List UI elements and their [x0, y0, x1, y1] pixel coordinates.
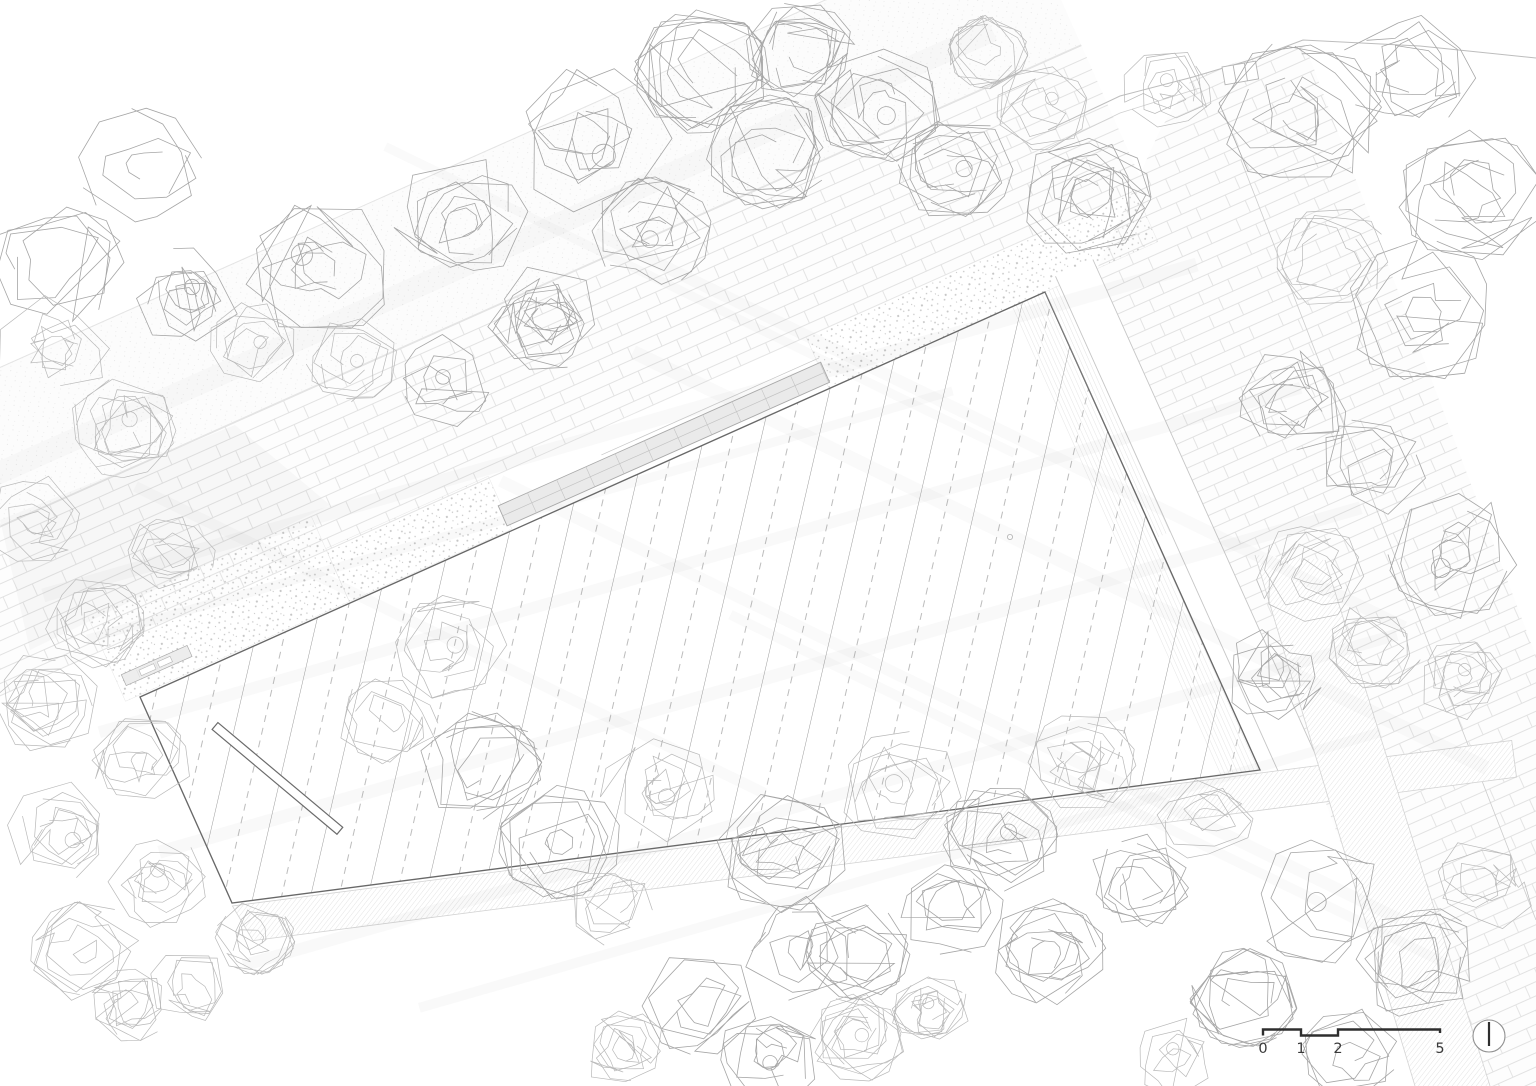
- tree-canopy: [996, 899, 1106, 1005]
- tree-canopy: [721, 1017, 816, 1086]
- tree-canopy: [1093, 834, 1189, 927]
- tree-canopy: [1302, 1009, 1397, 1086]
- tree-canopy: [901, 865, 1003, 954]
- tree-canopy: [108, 840, 205, 928]
- tree-canopy: [892, 977, 968, 1039]
- tree-canopy: [92, 969, 161, 1041]
- scale-label-1: 1: [1296, 1042, 1305, 1057]
- tree-canopy: [1399, 130, 1536, 260]
- tree-canopy: [31, 902, 139, 1001]
- tree-canopy: [810, 994, 904, 1081]
- tree-canopy: [590, 1011, 664, 1082]
- tree-canopy: [8, 782, 100, 878]
- scale-label-5: 5: [1435, 1042, 1444, 1057]
- tree-canopy: [1190, 948, 1297, 1047]
- scale-label-0: 0: [1258, 1042, 1267, 1057]
- tree-canopy: [79, 108, 202, 222]
- tree-canopy: [1344, 15, 1475, 117]
- site-plan-drawing: 0 1 2 5: [0, 0, 1536, 1086]
- tree-canopy: [1140, 1018, 1208, 1086]
- tree-canopy: [642, 958, 755, 1055]
- north-arrow-icon: [1473, 1020, 1505, 1052]
- plan-svg: [0, 0, 1536, 1086]
- tree-canopy: [0, 207, 124, 321]
- scale-label-2: 2: [1333, 1042, 1342, 1057]
